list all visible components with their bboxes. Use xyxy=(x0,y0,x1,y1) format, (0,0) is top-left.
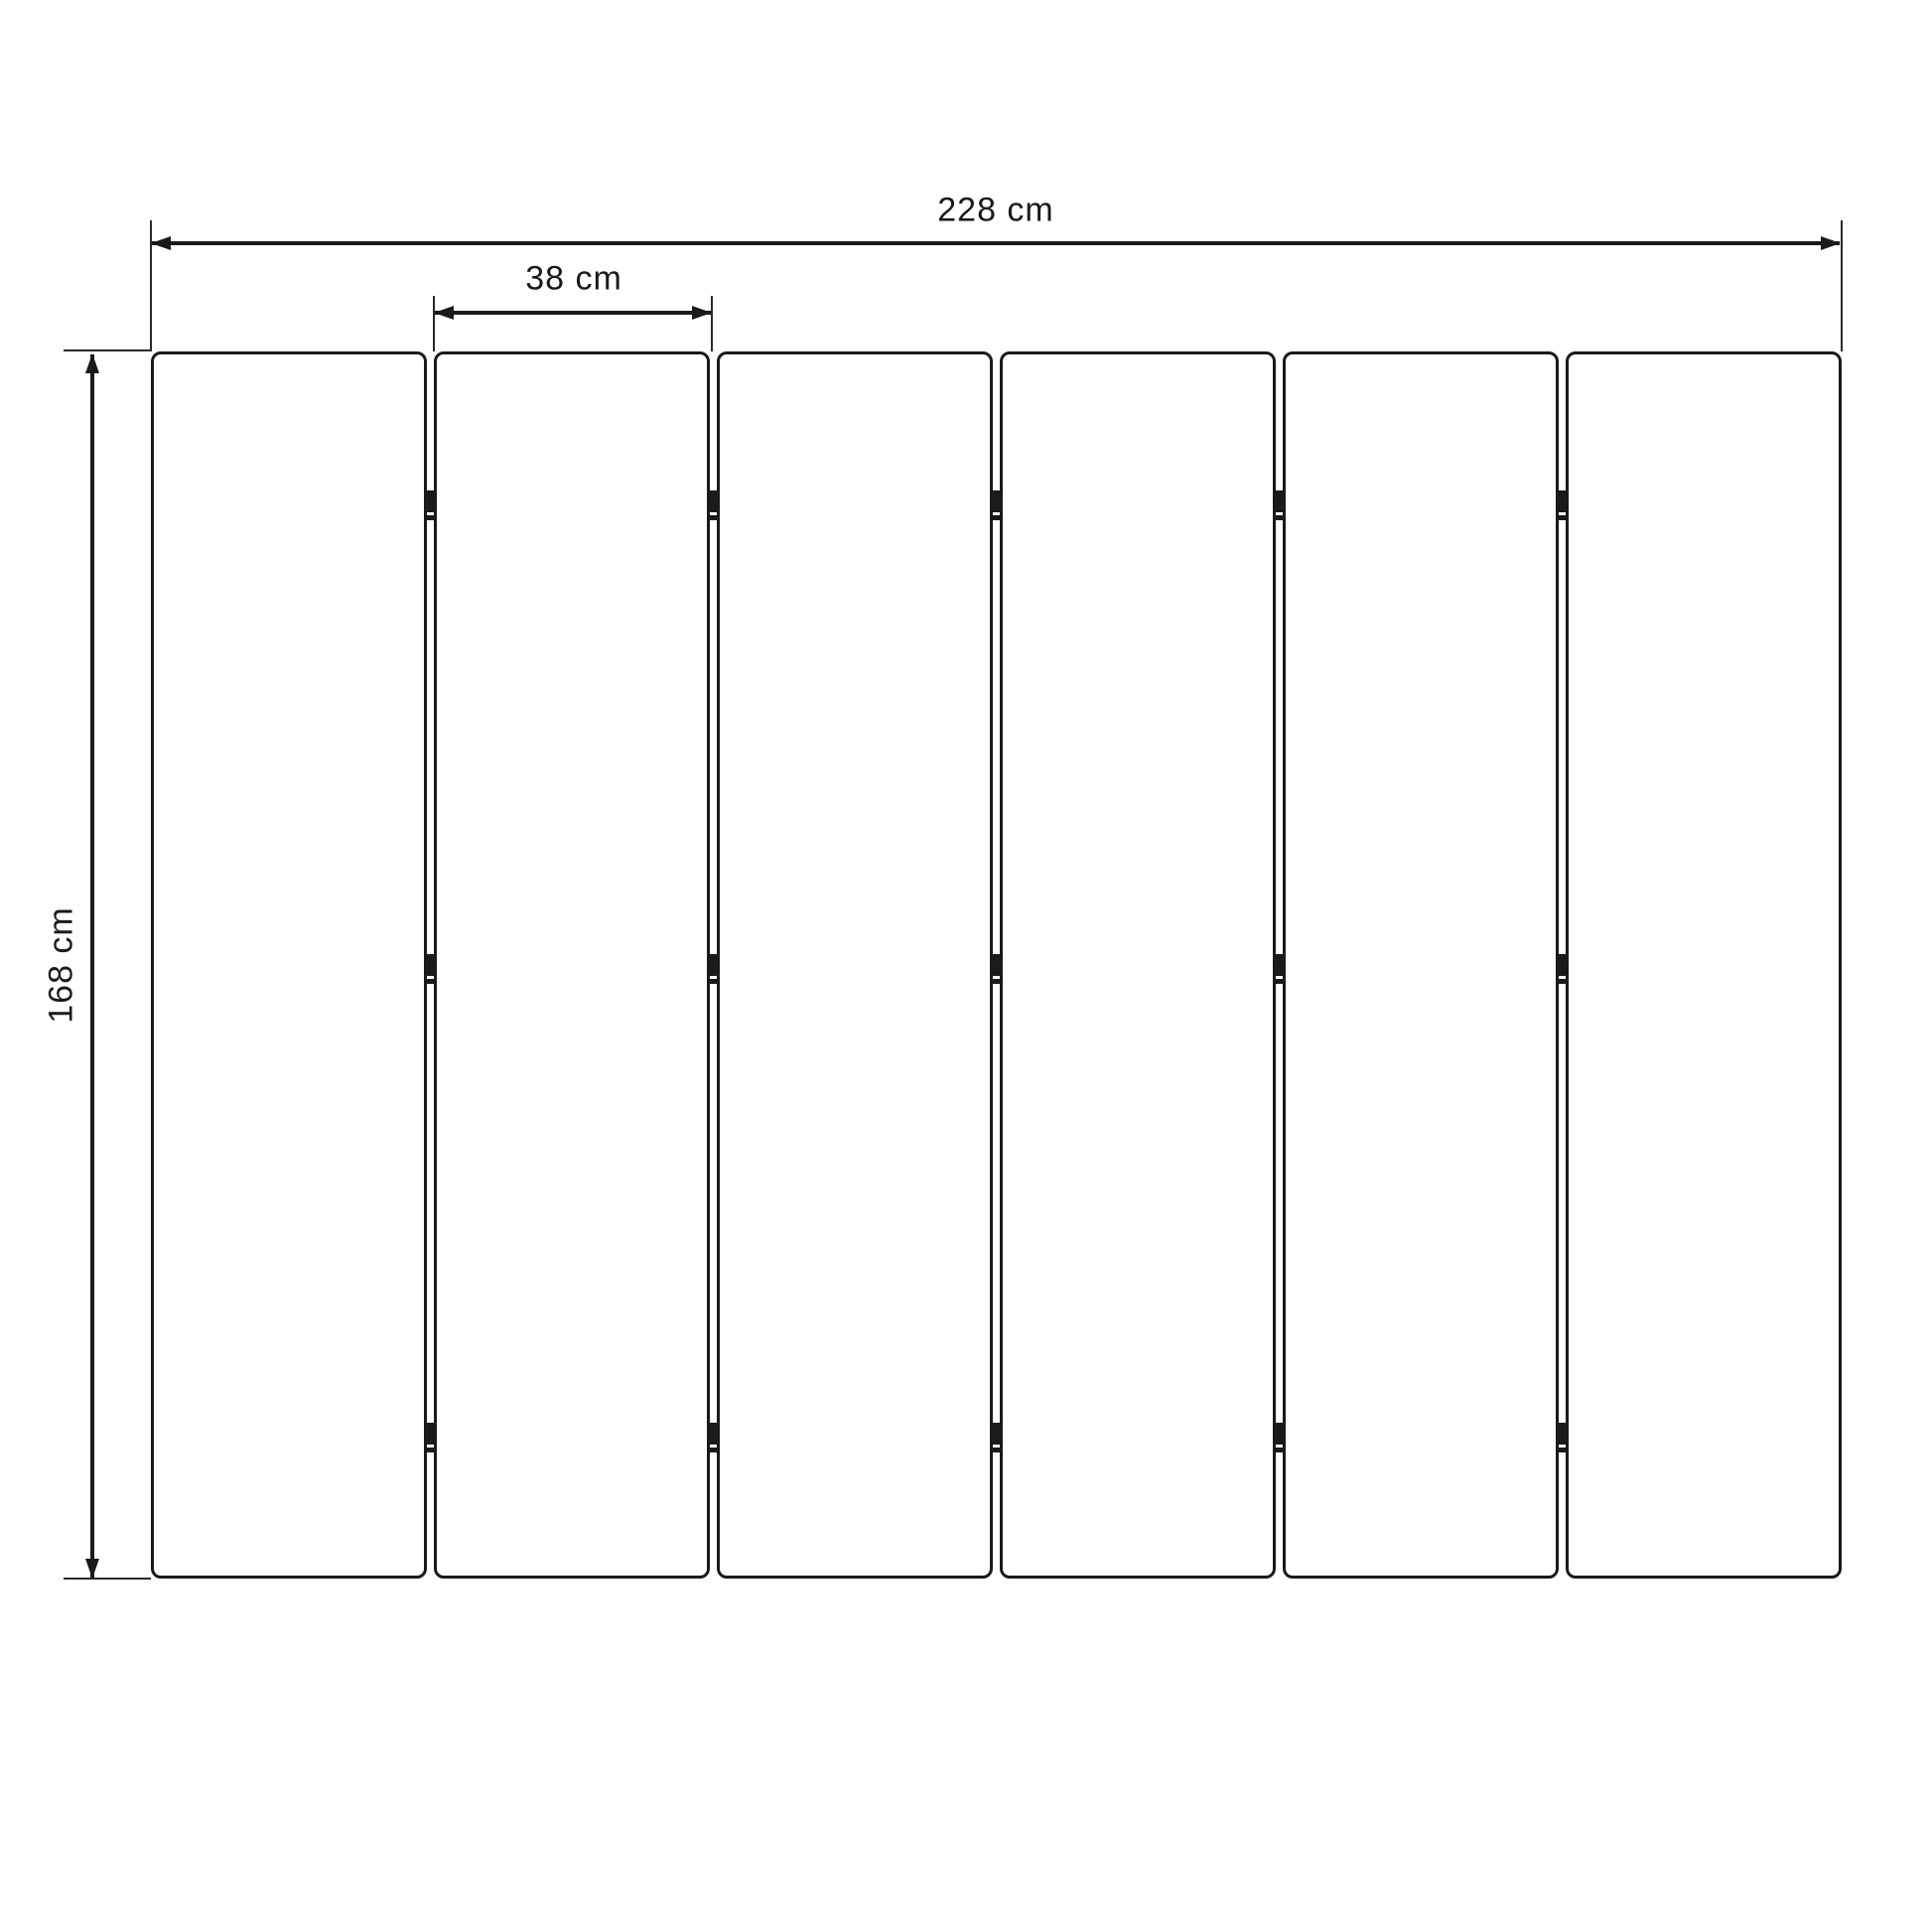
panel-2 xyxy=(434,351,710,1579)
hinge-joint5-row2 xyxy=(1557,954,1569,976)
panel-width-dimension-label: 38 cm xyxy=(525,260,622,299)
hinge-joint5-row1 xyxy=(1557,490,1569,512)
total-width-dimension-line xyxy=(152,241,1840,245)
hinge-joint1-row1 xyxy=(425,490,437,512)
hinge-joint3-row1 xyxy=(991,490,1003,512)
height-dimension-line xyxy=(90,354,94,1578)
hinge-notch-joint3-row1 xyxy=(991,515,1003,520)
hinge-notch-joint4-row3 xyxy=(1274,1448,1286,1452)
hinge-joint4-row1 xyxy=(1274,490,1286,512)
diagram-canvas: 228 cm 38 cm 168 cm xyxy=(0,0,1932,1932)
hinge-notch-joint5-row2 xyxy=(1557,979,1569,984)
hinge-notch-joint4-row1 xyxy=(1274,515,1286,520)
hinge-joint2-row2 xyxy=(708,954,720,976)
hinge-notch-joint3-row3 xyxy=(991,1448,1003,1452)
hinge-notch-joint2-row2 xyxy=(708,979,720,984)
height-dimension-label: 168 cm xyxy=(43,906,81,1024)
arrowhead-left-icon xyxy=(151,236,171,250)
extension-line-total-right xyxy=(1841,220,1843,351)
extension-line-height-top xyxy=(64,349,151,351)
extension-line-panel-right xyxy=(711,296,713,351)
panel-3 xyxy=(717,351,993,1579)
hinge-joint5-row3 xyxy=(1557,1423,1569,1445)
hinge-joint1-row3 xyxy=(425,1423,437,1445)
hinge-joint3-row2 xyxy=(991,954,1003,976)
hinge-notch-joint2-row1 xyxy=(708,515,720,520)
arrowhead-up-icon xyxy=(85,353,99,373)
extension-line-height-bottom xyxy=(64,1578,151,1580)
panel-width-dimension-line xyxy=(435,311,711,315)
hinge-notch-joint4-row2 xyxy=(1274,979,1286,984)
arrowhead-right-icon xyxy=(692,306,712,320)
hinge-notch-joint1-row3 xyxy=(425,1448,437,1452)
arrowhead-left-icon xyxy=(434,306,454,320)
hinge-notch-joint2-row3 xyxy=(708,1448,720,1452)
panel-4 xyxy=(1000,351,1276,1579)
hinge-joint2-row1 xyxy=(708,490,720,512)
hinge-joint4-row2 xyxy=(1274,954,1286,976)
hinge-notch-joint1-row2 xyxy=(425,979,437,984)
panel-6 xyxy=(1566,351,1842,1579)
hinge-notch-joint1-row1 xyxy=(425,515,437,520)
hinge-joint3-row3 xyxy=(991,1423,1003,1445)
hinge-notch-joint5-row3 xyxy=(1557,1448,1569,1452)
hinge-notch-joint3-row2 xyxy=(991,979,1003,984)
panel-1 xyxy=(151,351,427,1579)
arrowhead-right-icon xyxy=(1821,236,1841,250)
panel-5 xyxy=(1283,351,1559,1579)
hinge-joint2-row3 xyxy=(708,1423,720,1445)
hinge-joint1-row2 xyxy=(425,954,437,976)
hinge-joint4-row3 xyxy=(1274,1423,1286,1445)
hinge-notch-joint5-row1 xyxy=(1557,515,1569,520)
arrowhead-down-icon xyxy=(85,1559,99,1579)
extension-line-panel-left xyxy=(433,296,435,351)
total-width-dimension-label: 228 cm xyxy=(937,192,1054,230)
